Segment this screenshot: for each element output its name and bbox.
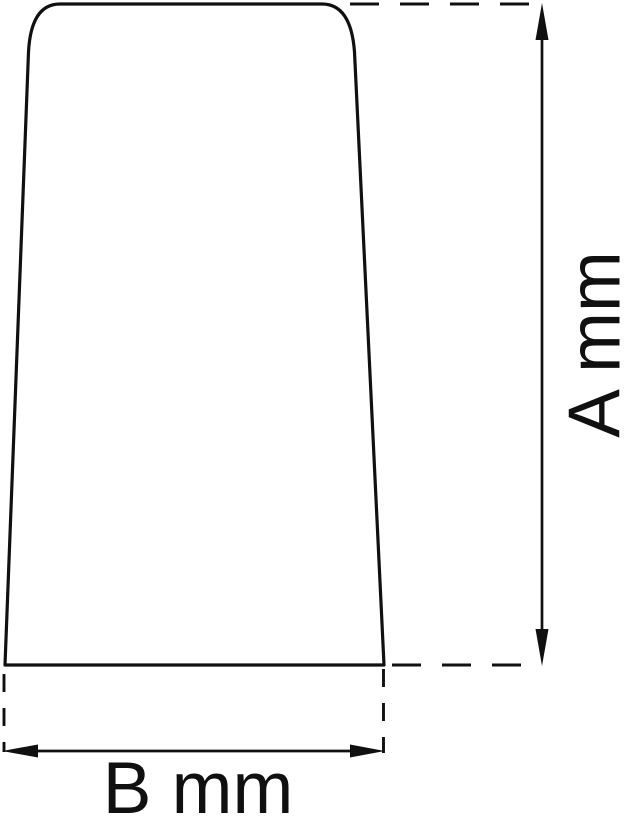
height-dimension-label: A mm: [559, 245, 632, 445]
drawing-linework: [0, 0, 640, 840]
arrow-up-icon: [536, 3, 549, 40]
dimension-drawing: A mm B mm: [0, 0, 640, 840]
width-dimension-label: B mm: [98, 752, 298, 825]
arrow-right-icon: [350, 745, 385, 758]
arrow-left-icon: [2, 745, 38, 758]
profile-outline: [5, 4, 384, 665]
arrow-down-icon: [536, 629, 549, 666]
